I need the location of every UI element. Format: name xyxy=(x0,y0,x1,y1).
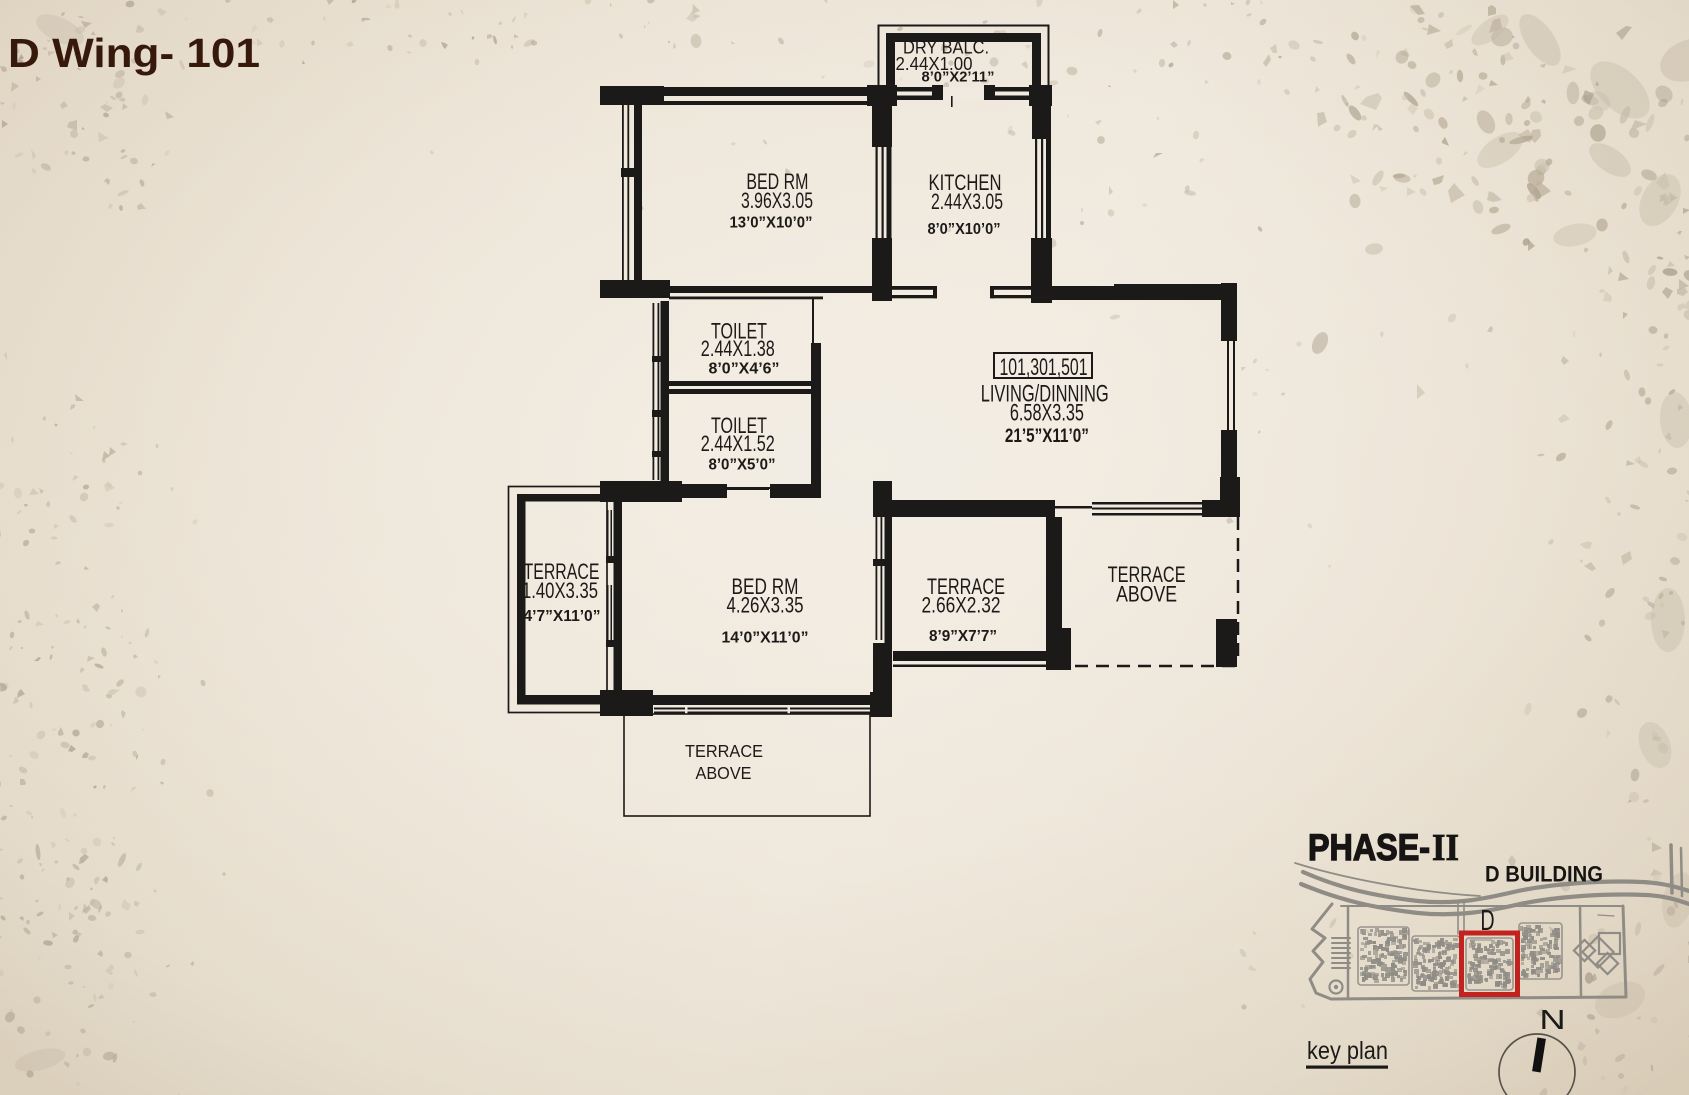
svg-text:8’0”X2’11”: 8’0”X2’11” xyxy=(922,70,995,86)
svg-text:13’0”X10’0”: 13’0”X10’0” xyxy=(730,215,813,232)
svg-text:8’9”X7’7”: 8’9”X7’7” xyxy=(929,628,997,645)
svg-text:4’7”X11’0”: 4’7”X11’0” xyxy=(524,608,601,625)
svg-text:4.26X3.35: 4.26X3.35 xyxy=(727,593,804,618)
svg-text:14’0”X11’0”: 14’0”X11’0” xyxy=(722,630,809,647)
svg-text:1.40X3.35: 1.40X3.35 xyxy=(522,578,598,603)
svg-text:21’5”X11’0”: 21’5”X11’0” xyxy=(1005,425,1089,447)
svg-text:PHASE-: PHASE- xyxy=(1308,827,1430,868)
svg-text:ABOVE: ABOVE xyxy=(696,763,752,783)
svg-text:101,301,501: 101,301,501 xyxy=(1000,354,1088,381)
svg-text:8’0”X5’0”: 8’0”X5’0” xyxy=(709,457,776,474)
svg-text:D: D xyxy=(1480,905,1494,937)
svg-text:3.96X3.05: 3.96X3.05 xyxy=(741,188,813,213)
svg-text:ABOVE: ABOVE xyxy=(1116,582,1177,607)
svg-text:2.44X1.38: 2.44X1.38 xyxy=(701,336,775,361)
svg-text:2.44X1.52: 2.44X1.52 xyxy=(701,431,775,456)
svg-text:2.66X2.32: 2.66X2.32 xyxy=(922,593,1001,618)
svg-text:D Wing- 101: D Wing- 101 xyxy=(8,30,260,76)
svg-text:TERRACE: TERRACE xyxy=(685,741,763,761)
svg-text:8’0”X4’6”: 8’0”X4’6” xyxy=(709,361,780,378)
svg-text:D BUILDING: D BUILDING xyxy=(1485,862,1603,887)
svg-text:8’0”X10’0”: 8’0”X10’0” xyxy=(928,221,1001,238)
svg-text:2.44X3.05: 2.44X3.05 xyxy=(931,189,1003,214)
svg-text:6.58X3.35: 6.58X3.35 xyxy=(1010,400,1084,427)
svg-text:key plan: key plan xyxy=(1307,1037,1388,1065)
svg-text:N: N xyxy=(1539,1004,1565,1035)
svg-text:II: II xyxy=(1432,827,1459,869)
